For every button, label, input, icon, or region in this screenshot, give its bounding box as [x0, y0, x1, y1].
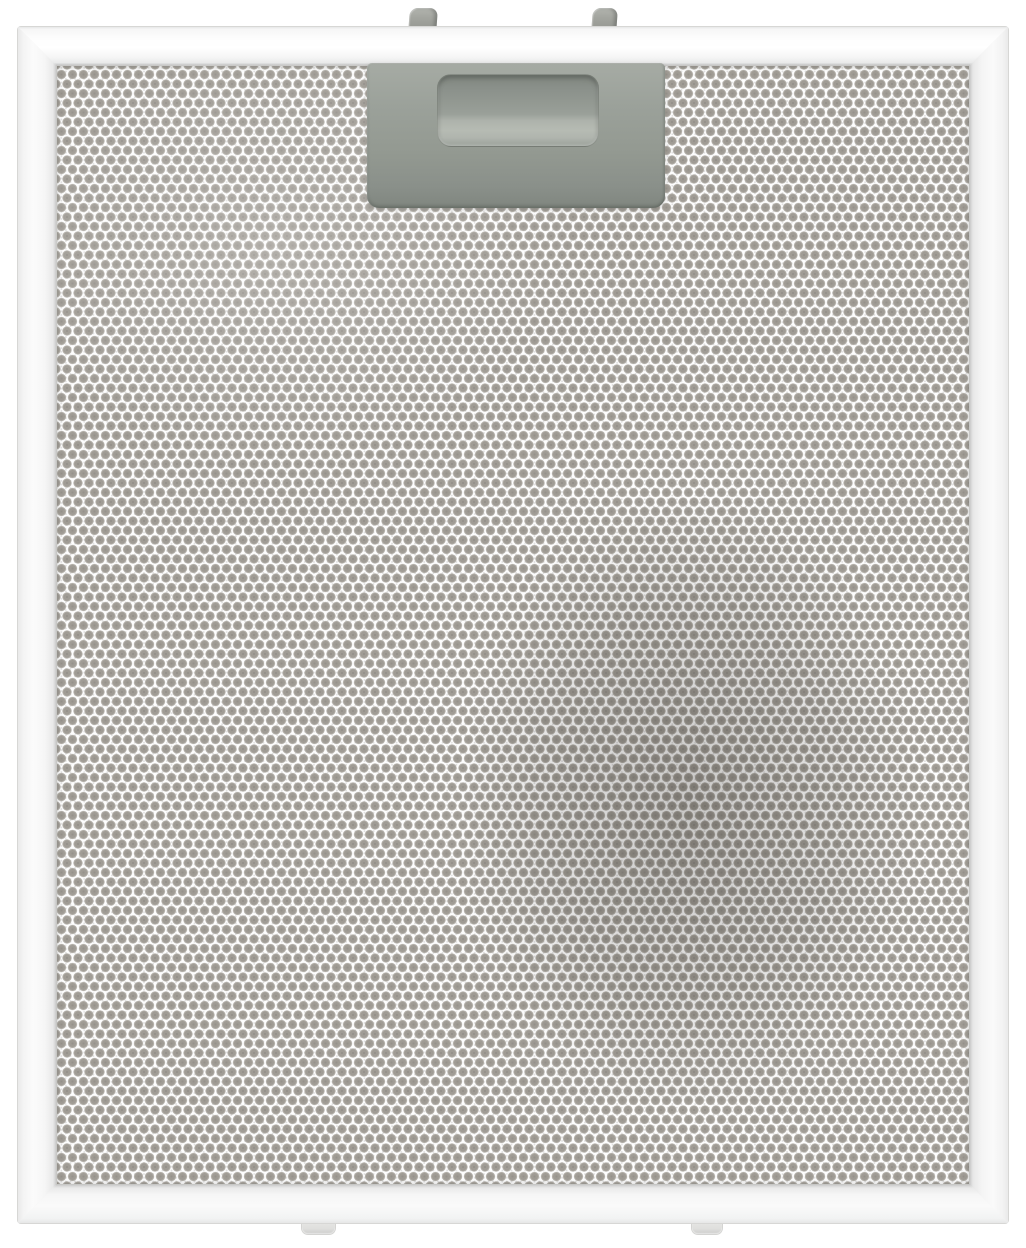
release-latch — [367, 63, 665, 208]
mesh-light-sheen — [56, 65, 970, 1185]
latch-grip-recess — [437, 74, 599, 147]
mesh-panel — [56, 65, 970, 1185]
product-photo — [0, 0, 1026, 1248]
frame-face-bottom — [18, 1185, 1008, 1223]
frame-face-top — [18, 27, 1008, 65]
frame-face-left — [18, 27, 56, 1223]
frame-face-right — [970, 27, 1008, 1223]
mesh-shadow-smudge — [460, 500, 920, 1100]
